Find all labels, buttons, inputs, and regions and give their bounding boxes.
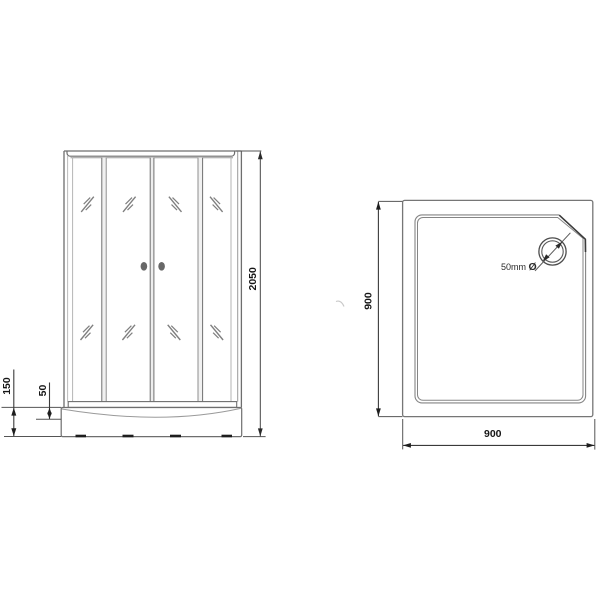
svg-text:900: 900 (484, 428, 502, 440)
svg-text:50: 50 (37, 385, 49, 397)
svg-text:2050: 2050 (247, 267, 259, 291)
svg-text:150: 150 (1, 377, 13, 395)
svg-text:900: 900 (363, 292, 375, 310)
svg-text:50mm Ø: 50mm Ø (501, 261, 537, 273)
